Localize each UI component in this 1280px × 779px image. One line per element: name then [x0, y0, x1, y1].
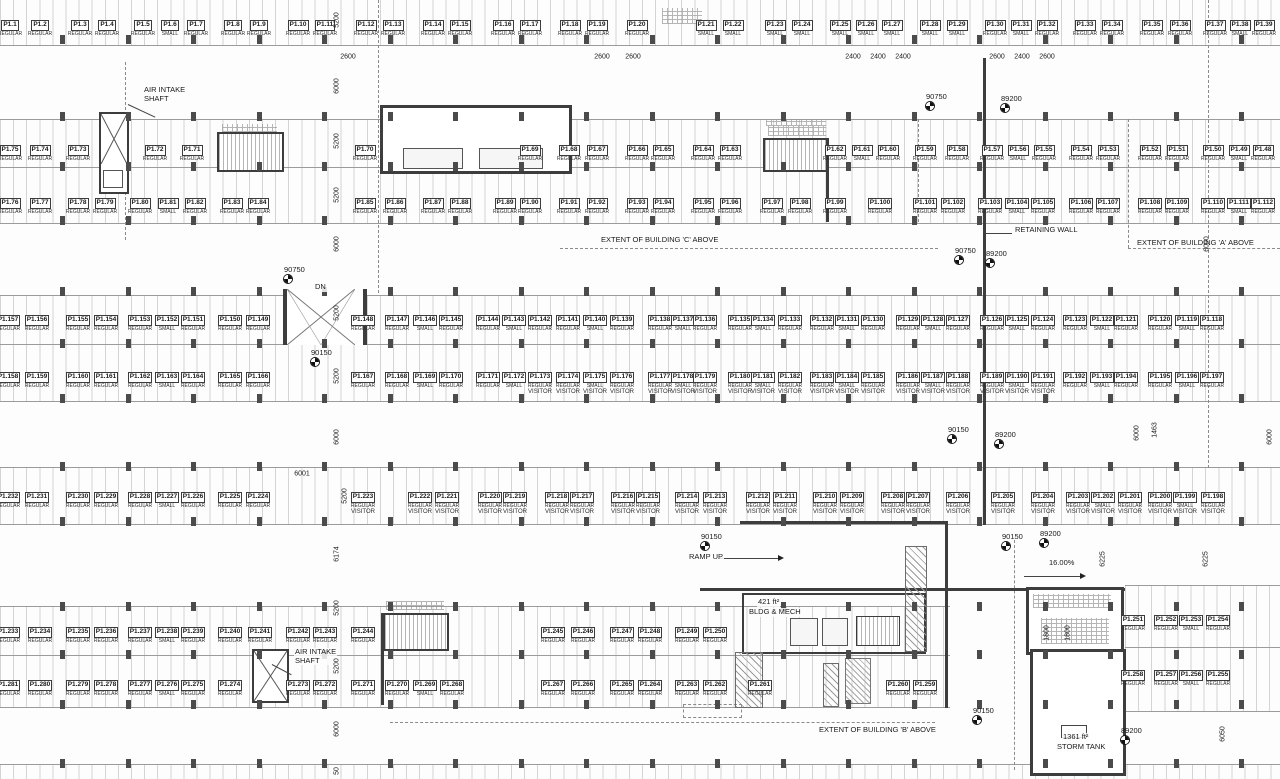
column — [1108, 759, 1113, 768]
column — [650, 216, 655, 225]
dimension-label: 5200 — [334, 368, 341, 384]
stall-type: REGULAR — [936, 210, 970, 215]
column — [912, 339, 917, 348]
column — [1239, 394, 1244, 403]
stall-type: REGULAR — [61, 157, 95, 162]
column — [846, 112, 851, 121]
parking-stall: P1.264REGULAR — [633, 674, 667, 697]
stall-type: REGULAR — [23, 639, 57, 644]
stall-id: P1.19 — [587, 20, 608, 31]
stall-id: P1.100 — [868, 198, 893, 209]
column — [1239, 650, 1244, 659]
column — [781, 759, 786, 768]
parking-stall: P1.188REGULARVISITOR — [941, 366, 975, 395]
stall-id: P1.141 — [556, 315, 581, 326]
spot-elevation: 89200 — [1121, 727, 1142, 744]
column — [781, 650, 786, 659]
column — [846, 394, 851, 403]
parking-stall: P1.121REGULAR — [1109, 309, 1143, 332]
stall-id: P1.161 — [94, 372, 119, 383]
parking-stall: P1.221REGULARVISITOR — [430, 486, 464, 515]
parking-stall: P1.154REGULAR — [89, 309, 123, 332]
stall-type: REGULAR — [1160, 210, 1194, 215]
stall-id: P1.262 — [703, 680, 728, 691]
column — [715, 394, 720, 403]
stall-type: REGULAR — [536, 639, 570, 644]
spot-target-icon — [973, 716, 981, 724]
column — [1239, 162, 1244, 171]
column — [388, 650, 393, 659]
parking-stall: P1.151REGULAR — [176, 309, 210, 332]
parking-stall: P1.251REGULAR — [1116, 609, 1150, 632]
column — [650, 517, 655, 526]
parking-stall: P1.71REGULAR — [175, 139, 209, 162]
parking-stall: P1.201REGULARVISITOR — [1113, 486, 1147, 515]
column — [846, 517, 851, 526]
parking-stall: P1.145REGULAR — [434, 309, 468, 332]
stall-type: REGULAR — [88, 210, 122, 215]
stall-type: REGULAR — [434, 384, 468, 389]
stall-visitor-label: VISITOR — [1196, 509, 1230, 515]
dimension-label: 2600 — [340, 54, 356, 61]
column — [126, 394, 131, 403]
ramp-slope-arrow-line — [1024, 576, 1082, 577]
column — [977, 462, 982, 471]
stall-type: REGULAR — [176, 692, 210, 697]
column — [257, 759, 262, 768]
stall-id: P1.221 — [435, 492, 460, 503]
column — [715, 517, 720, 526]
column — [453, 112, 458, 121]
stall-id: P1.105 — [1031, 198, 1056, 209]
parking-stall: P1.88REGULAR — [443, 192, 477, 215]
column — [60, 602, 65, 611]
parking-floor-plan: P1.1REGULARP1.2REGULARP1.3REGULARP1.4REG… — [0, 0, 1280, 779]
column — [126, 650, 131, 659]
stall-visitor-label: VISITOR — [1113, 509, 1147, 515]
dimension-label: 6000 — [334, 78, 341, 94]
column — [912, 112, 917, 121]
column — [322, 216, 327, 225]
stall-id: P1.61 — [852, 145, 873, 156]
stall-type: REGULAR — [213, 692, 247, 697]
column — [650, 759, 655, 768]
column — [388, 759, 393, 768]
stall-id: P1.280 — [28, 680, 53, 691]
parking-stall: P1.246REGULAR — [566, 621, 600, 644]
stall-id: P1.174 — [556, 372, 581, 383]
spot-elevation-value: 89200 — [1001, 94, 1022, 103]
column — [584, 700, 589, 709]
parking-stall: P1.250REGULAR — [698, 621, 732, 644]
stall-id: P1.157 — [0, 315, 20, 326]
stall-id: P1.243 — [313, 627, 338, 638]
spot-elevation-value: 89200 — [986, 249, 1007, 258]
column — [1239, 287, 1244, 296]
stall-type: REGULAR — [176, 639, 210, 644]
parking-stall: P1.90REGULAR — [513, 192, 547, 215]
stall-id: P1.150 — [218, 315, 243, 326]
stall-id: P1.95 — [693, 198, 714, 209]
stall-type: REGULAR — [580, 32, 614, 37]
stall-type: REGULAR — [1247, 32, 1280, 37]
stall-id: P1.106 — [1069, 198, 1094, 209]
column — [388, 394, 393, 403]
spot-elevation: 90150 — [948, 426, 969, 443]
stall-id: P1.147 — [385, 315, 410, 326]
stall-type: REGULAR — [1113, 504, 1147, 509]
stall-type: REGULAR — [443, 210, 477, 215]
column — [781, 462, 786, 471]
dimension-label: 50 — [334, 767, 341, 775]
stall-type: REGULAR — [175, 157, 209, 162]
column — [257, 650, 262, 659]
parking-stall: P1.206REGULARVISITOR — [941, 486, 975, 515]
column — [650, 462, 655, 471]
column — [60, 216, 65, 225]
bike-storage-room — [1026, 587, 1124, 655]
parking-stall: P1.20REGULAR — [620, 14, 654, 37]
extent-dashed-line — [1208, 0, 1209, 468]
spot-elevation-value: 90150 — [311, 348, 332, 357]
dimension-label: 5200 — [334, 600, 341, 616]
column — [1043, 602, 1048, 611]
stall-visitor-label: VISITOR — [835, 509, 869, 515]
stall-id: P1.66 — [627, 145, 648, 156]
stall-id: P1.250 — [703, 627, 728, 638]
column — [519, 517, 524, 526]
stall-type: REGULAR — [856, 384, 890, 389]
stall-type: REGULAR — [713, 157, 747, 162]
stall-id: P1.127 — [946, 315, 971, 326]
stall-id: P1.199 — [1173, 492, 1198, 503]
stall-id: P1.244 — [351, 627, 376, 638]
spot-target-icon — [311, 358, 319, 366]
parking-stall: P1.74REGULAR — [23, 139, 57, 162]
stall-id: P1.90 — [520, 198, 541, 209]
bike-racks — [386, 601, 444, 610]
stall-id: P1.26 — [856, 20, 877, 31]
parking-stall: P1.48REGULAR — [1246, 139, 1280, 162]
parking-stall: P1.86REGULAR — [378, 192, 412, 215]
parking-stall: P1.255REGULAR — [1201, 664, 1235, 687]
column — [322, 394, 327, 403]
stall-id: P1.168 — [385, 372, 410, 383]
column — [912, 759, 917, 768]
column — [912, 162, 917, 171]
stall-id: P1.77 — [30, 198, 51, 209]
stall-id: P1.260 — [886, 680, 911, 691]
column — [1174, 650, 1179, 659]
column — [519, 650, 524, 659]
parking-stall: P1.36REGULAR — [1163, 14, 1197, 37]
column — [453, 602, 458, 611]
column — [191, 602, 196, 611]
stall-type: REGULAR — [1026, 210, 1060, 215]
parking-stall: P1.94REGULAR — [646, 192, 680, 215]
column — [60, 112, 65, 121]
stall-id: P1.16 — [493, 20, 514, 31]
parking-stall: P1.248REGULAR — [633, 621, 667, 644]
stall-id: P1.67 — [587, 145, 608, 156]
column — [1174, 287, 1179, 296]
annotation: EXTENT OF BUILDING 'A' ABOVE — [1136, 239, 1255, 248]
stall-visitor-label: VISITOR — [941, 389, 975, 395]
parking-stall: P1.112REGULAR — [1246, 192, 1280, 215]
parking-stall: P1.219REGULARVISITOR — [498, 486, 532, 515]
stall-id: P1.175 — [583, 372, 608, 383]
column — [257, 112, 262, 121]
parking-stall: P1.32REGULAR — [1030, 14, 1064, 37]
stall-type: REGULAR — [698, 692, 732, 697]
parking-stall: P1.67REGULAR — [580, 139, 614, 162]
column — [584, 650, 589, 659]
stall-id: P1.23 — [765, 20, 786, 31]
dimension-label: 6000 — [1134, 425, 1141, 441]
stall-id: P1.263 — [675, 680, 700, 691]
parking-stall: P1.166REGULAR — [241, 366, 275, 389]
parking-stall: P1.24SMALL — [785, 14, 819, 37]
stall-type: REGULAR — [1027, 157, 1061, 162]
stall-id: P1.80 — [130, 198, 151, 209]
stall-id: P1.246 — [571, 627, 596, 638]
parking-stall: P1.233REGULAR — [0, 621, 25, 644]
parking-stall: P1.15REGULAR — [443, 14, 477, 37]
stall-id: P1.192 — [1063, 372, 1088, 383]
column — [1239, 759, 1244, 768]
stall-id: P1.102 — [941, 198, 966, 209]
stall-id: P1.123 — [1063, 315, 1088, 326]
parking-stall: P1.63REGULAR — [713, 139, 747, 162]
parking-stall: P1.245REGULAR — [536, 621, 570, 644]
stall-type: REGULAR — [0, 639, 25, 644]
column — [126, 759, 131, 768]
column — [846, 462, 851, 471]
stair-core — [383, 613, 449, 651]
aisle-line — [0, 655, 950, 656]
stall-id: P1.224 — [246, 492, 271, 503]
stall-id: P1.225 — [218, 492, 243, 503]
stall-visitor-label: VISITOR — [901, 509, 935, 515]
spot-target-icon — [948, 435, 956, 443]
column — [584, 339, 589, 348]
column — [781, 339, 786, 348]
column — [1174, 517, 1179, 526]
parking-stall: P1.77REGULAR — [23, 192, 57, 215]
stall-type: REGULAR — [565, 504, 599, 509]
parking-stall: P1.133REGULAR — [773, 309, 807, 332]
parking-stall: P1.19REGULAR — [580, 14, 614, 37]
stall-type: REGULAR — [513, 210, 547, 215]
stall-id: P1.73 — [68, 145, 89, 156]
stall-id: P1.242 — [286, 627, 311, 638]
core-wall — [945, 523, 948, 708]
dimension-label: 6050 — [1220, 726, 1227, 742]
stall-visitor-label: VISITOR — [856, 389, 890, 395]
stall-id: P1.96 — [720, 198, 741, 209]
stall-id: P1.27 — [882, 20, 903, 31]
parking-stall: P1.274REGULAR — [213, 674, 247, 697]
parking-stall: P1.217REGULARVISITOR — [565, 486, 599, 515]
stall-id: P1.219 — [503, 492, 528, 503]
column — [977, 339, 982, 348]
stall-id: P1.65 — [653, 145, 674, 156]
column — [650, 394, 655, 403]
column — [388, 602, 393, 611]
parking-stall: P1.51REGULAR — [1160, 139, 1194, 162]
parking-stall: P1.13REGULAR — [376, 14, 410, 37]
column — [453, 339, 458, 348]
parking-stall: P1.9REGULAR — [242, 14, 276, 37]
parking-stall: P1.82REGULAR — [178, 192, 212, 215]
column — [977, 394, 982, 403]
stall-type: REGULAR — [23, 692, 57, 697]
column — [715, 339, 720, 348]
parking-stall: P1.22SMALL — [716, 14, 750, 37]
dimension-label: 6225 — [1203, 551, 1210, 567]
stall-id: P1.85 — [355, 198, 376, 209]
stall-id: P1.181 — [751, 372, 776, 383]
stall-id: P1.55 — [1034, 145, 1055, 156]
column — [257, 700, 262, 709]
stall-type: REGULAR — [871, 157, 905, 162]
storm-tank-room — [1030, 649, 1126, 776]
stall-visitor-label: VISITOR — [605, 389, 639, 395]
stall-id: P1.235 — [66, 627, 91, 638]
column — [388, 700, 393, 709]
column — [1174, 700, 1179, 709]
stall-type: REGULAR — [498, 504, 532, 509]
stall-type: REGULAR — [90, 32, 124, 37]
stall-id: P1.258 — [1121, 670, 1146, 681]
stall-id: P1.4 — [98, 20, 115, 31]
column — [781, 162, 786, 171]
annotation: DN — [314, 283, 327, 292]
stall-type: REGULAR — [376, 32, 410, 37]
column — [1043, 287, 1048, 296]
extent-building-c-line — [560, 248, 938, 249]
parking-stall: P1.244REGULAR — [346, 621, 380, 644]
stall-id: P1.254 — [1206, 615, 1231, 626]
stall-visitor-label: VISITOR — [941, 509, 975, 515]
elevator-cab — [822, 618, 848, 646]
spot-elevation-value: 89200 — [1040, 529, 1061, 538]
stall-type: REGULAR — [743, 692, 777, 697]
dimension-label: 6174 — [334, 546, 341, 562]
parking-stall: P1.136REGULAR — [688, 309, 722, 332]
stall-id: P1.3 — [71, 20, 88, 31]
stall-type: REGULAR — [631, 504, 665, 509]
stall-id: P1.35 — [1142, 20, 1163, 31]
stair-core — [856, 616, 900, 646]
stall-type: REGULAR — [178, 210, 212, 215]
elevator-cab — [790, 618, 818, 646]
stall-id: P1.11 — [315, 20, 336, 31]
parking-stall: P1.69REGULAR — [513, 139, 547, 162]
stall-id: P1.179 — [693, 372, 718, 383]
column — [60, 162, 65, 171]
stall-id: P1.232 — [0, 492, 20, 503]
column — [453, 216, 458, 225]
column — [650, 112, 655, 121]
column — [519, 112, 524, 121]
column — [126, 287, 131, 296]
dimension-label: 2400 — [895, 54, 911, 61]
dimension-label: 5200 — [342, 488, 349, 504]
stall-id: P1.60 — [878, 145, 899, 156]
stall-id: P1.170 — [439, 372, 464, 383]
stall-id: P1.229 — [94, 492, 119, 503]
spot-elevation: 90150 — [1002, 533, 1023, 550]
spot-elevation: 90750 — [284, 266, 305, 283]
spot-elevation-value: 90750 — [284, 265, 305, 274]
stall-id: P1.142 — [528, 315, 553, 326]
column — [1043, 650, 1048, 659]
stall-type: REGULAR — [213, 639, 247, 644]
spot-target-icon — [986, 259, 994, 267]
stall-id: P1.118 — [1200, 315, 1224, 326]
annotation: EXTENT OF BUILDING 'B' ABOVE — [818, 726, 937, 735]
column — [977, 759, 982, 768]
column — [1043, 394, 1048, 403]
column — [1239, 517, 1244, 526]
parking-stall: P1.58REGULAR — [940, 139, 974, 162]
stall-id: P1.130 — [861, 315, 886, 326]
annotation: AIR INTAKE SHAFT — [294, 648, 337, 665]
stall-id: P1.54 — [1071, 145, 1092, 156]
spot-elevation-value: 90150 — [701, 532, 722, 541]
stall-id: P1.154 — [94, 315, 119, 326]
stall-type: REGULAR — [1246, 157, 1280, 162]
stall-type: REGULAR — [308, 32, 342, 37]
parking-stall: P1.99REGULAR — [818, 192, 852, 215]
stall-id: P1.133 — [778, 315, 803, 326]
parking-stall: P1.34REGULAR — [1095, 14, 1129, 37]
parking-stall: P1.258REGULAR — [1116, 664, 1150, 687]
column — [781, 112, 786, 121]
column — [584, 112, 589, 121]
parking-stall: P1.275REGULAR — [176, 674, 210, 697]
column — [519, 700, 524, 709]
column — [977, 216, 982, 225]
stall-id: P1.103 — [978, 198, 1003, 209]
parking-stall: P1.65REGULAR — [646, 139, 680, 162]
parking-stall: P1.109REGULAR — [1160, 192, 1194, 215]
spot-elevation-value: 90150 — [1002, 532, 1023, 541]
retaining-wall — [983, 58, 986, 525]
column — [1043, 112, 1048, 121]
stall-id: P1.86 — [385, 198, 406, 209]
dimension-label: 5200 — [334, 305, 341, 321]
stall-id: P1.1 — [1, 20, 18, 31]
column — [519, 602, 524, 611]
parking-stall: P1.139REGULAR — [605, 309, 639, 332]
stall-id: P1.108 — [1138, 198, 1163, 209]
stall-id: P1.270 — [385, 680, 410, 691]
parking-stall: P1.205REGULARVISITOR — [986, 486, 1020, 515]
stall-id: P1.266 — [571, 680, 596, 691]
column — [126, 216, 131, 225]
parking-stall: P1.84REGULAR — [241, 192, 275, 215]
spot-target-icon — [995, 440, 1003, 448]
spot-elevation: 89200 — [995, 431, 1016, 448]
stall-type: REGULAR — [346, 327, 380, 332]
dimension-label: 2600 — [625, 54, 641, 61]
annotation: 421 ft² — [757, 598, 780, 607]
stall-id: P1.188 — [946, 372, 971, 383]
stall-id: P1.204 — [1031, 492, 1056, 503]
parking-stall: P1.268REGULAR — [435, 674, 469, 697]
